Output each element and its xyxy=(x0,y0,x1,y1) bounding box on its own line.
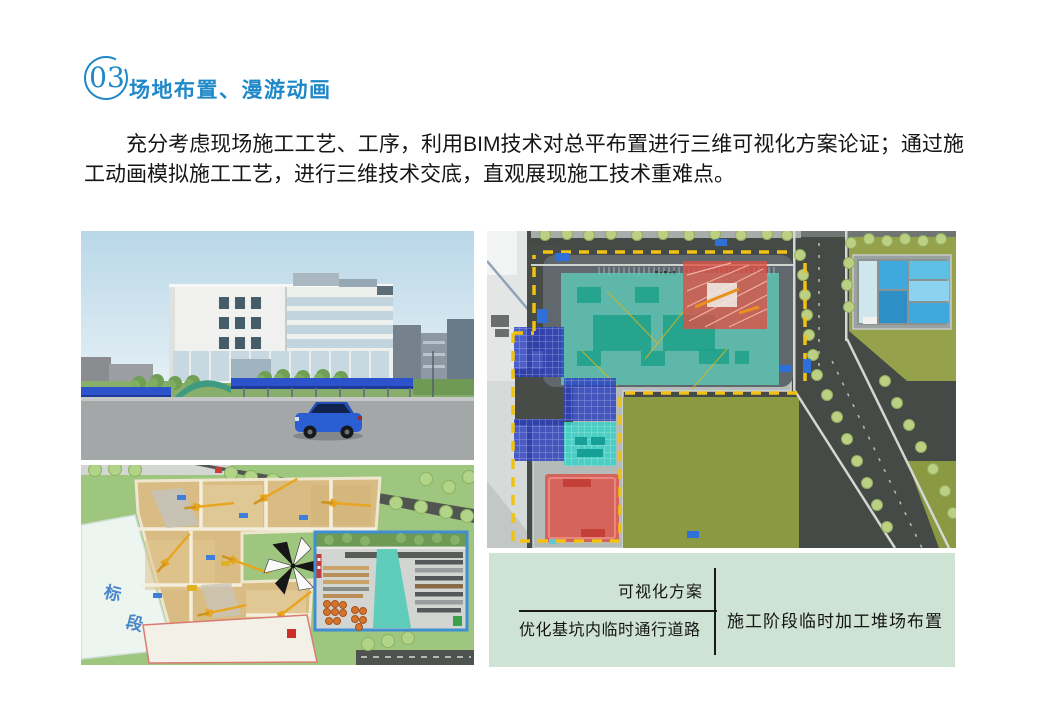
figure-excavation-aerial: 标 段 xyxy=(81,465,474,665)
caption-divider-vertical xyxy=(714,568,716,655)
figure-site-plan xyxy=(487,231,956,548)
caption-fraction-numerator: 可视化方案 xyxy=(519,583,717,603)
main-building xyxy=(169,273,393,383)
road-sign xyxy=(215,467,222,473)
red-flag-marker xyxy=(287,629,296,638)
caption-fraction-denominator: 优化基坑内临时通行道路 xyxy=(519,621,717,641)
figure-building-render xyxy=(81,231,474,460)
processing-zone-red-north xyxy=(683,261,767,329)
caption-fraction: 可视化方案 优化基坑内临时通行道路 xyxy=(519,583,717,641)
green-bin xyxy=(453,616,462,626)
hedge xyxy=(413,379,474,395)
road xyxy=(81,401,474,460)
site-plan-scene xyxy=(487,231,956,548)
top-right-strip xyxy=(801,231,956,237)
building-render-scene xyxy=(81,231,474,460)
page-title: 场地布置、漫游动画 xyxy=(129,79,332,103)
adjacent-facility-pools xyxy=(853,255,951,329)
rebar-zone-cyan xyxy=(564,422,616,466)
inset-processing-yard xyxy=(315,532,467,631)
badge-number: 03 xyxy=(89,61,125,94)
grass-field xyxy=(623,397,799,548)
figure-caption-box: 可视化方案 优化基坑内临时通行道路 施工阶段临时加工堆场布置 xyxy=(489,553,955,667)
section-number-badge: 03 xyxy=(82,53,134,105)
excavation-scene: 标 段 xyxy=(81,465,474,665)
page: 03 场地布置、漫游动画 充分考虑现场施工工艺、工序，利用BIM技术对总平布置进… xyxy=(0,0,1045,716)
intro-paragraph: 充分考虑现场施工工艺、工序，利用BIM技术对总平布置进行三维可视化方案论证；通过… xyxy=(84,130,964,190)
caption-right-label: 施工阶段临时加工堆场布置 xyxy=(727,612,943,632)
caption-divider-horizontal xyxy=(519,610,717,612)
processing-zone-red-south xyxy=(545,474,619,544)
